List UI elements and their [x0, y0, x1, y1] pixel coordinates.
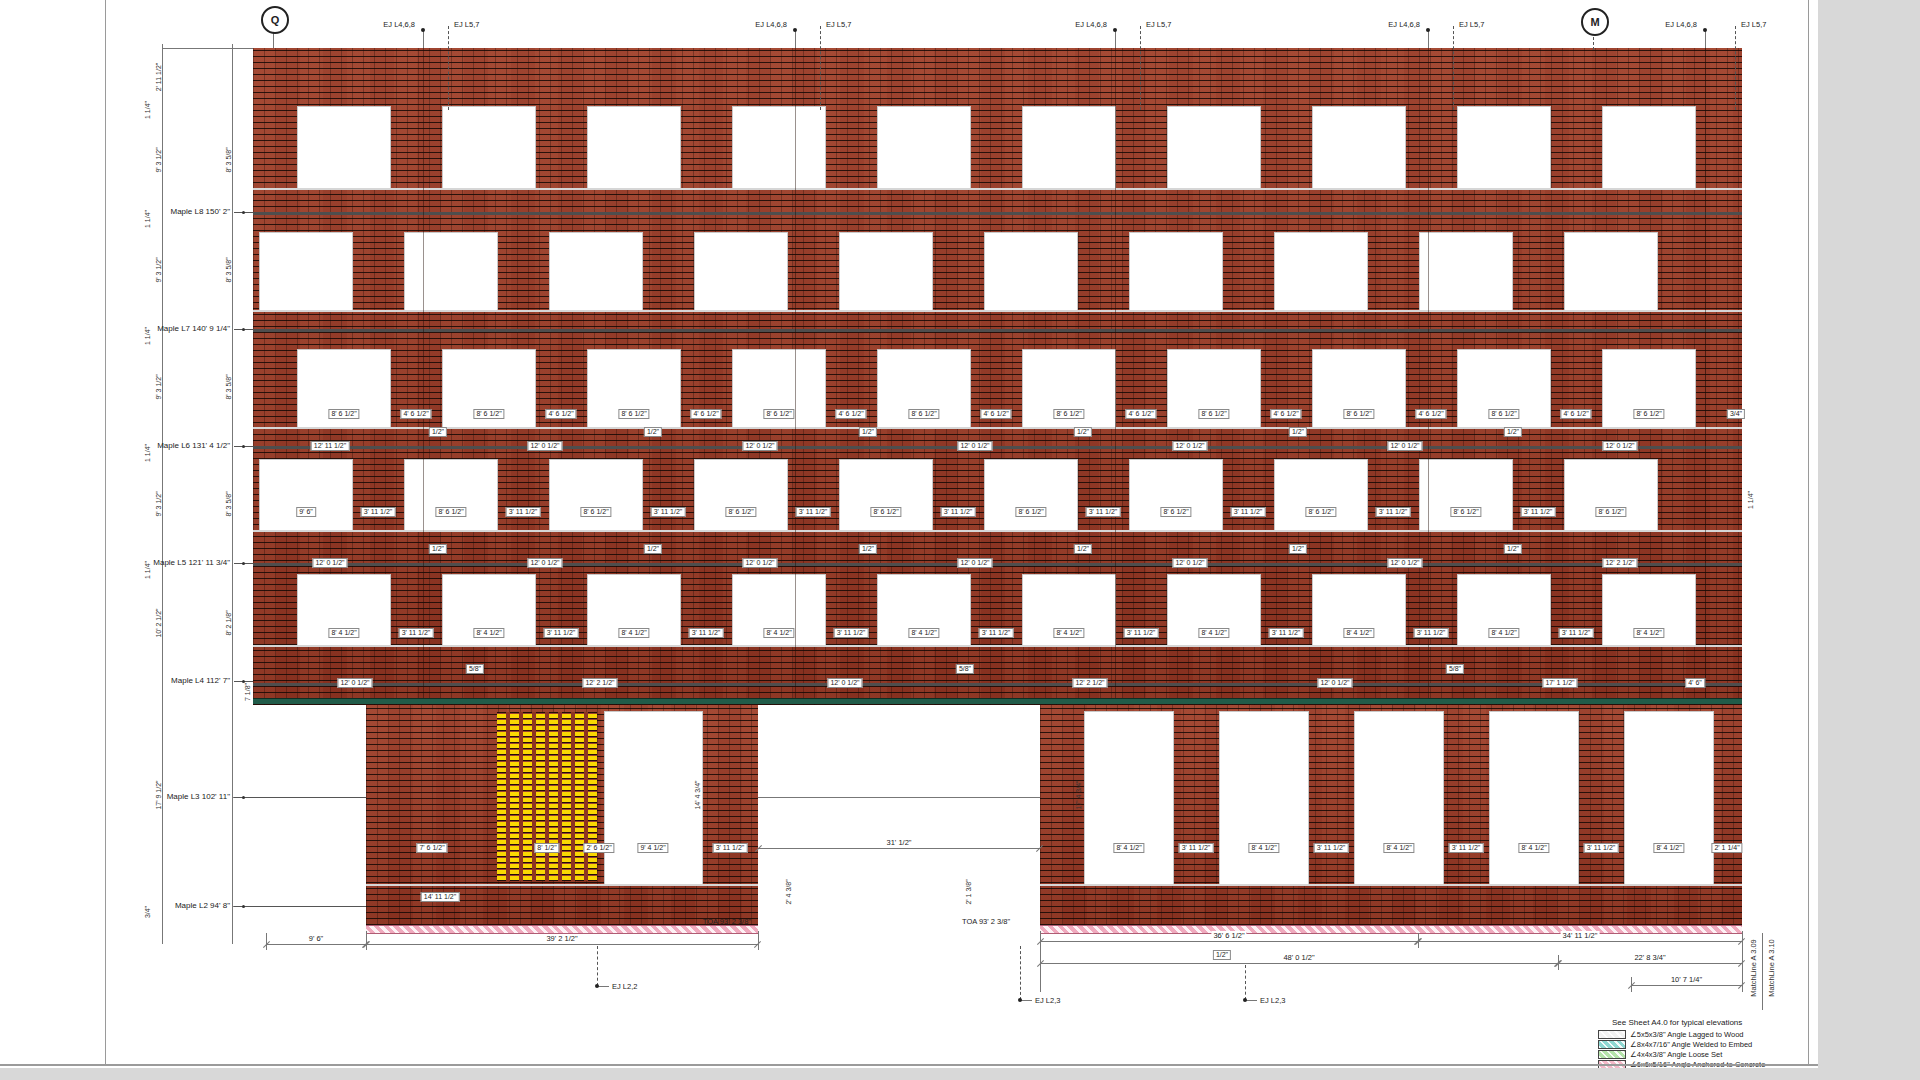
dimension-tag: 2' 6 1/2"	[583, 843, 614, 853]
grid-bubble-m: M	[1581, 8, 1609, 36]
dashed-reference-line	[820, 26, 821, 110]
dimension-tag: 8' 4 1/2"	[1198, 628, 1229, 638]
window-opening	[1458, 107, 1550, 188]
ej-dot	[1426, 28, 1430, 32]
ej-top-label-dashed: EJ L5,7	[1146, 20, 1171, 29]
window-opening	[550, 460, 642, 530]
dimension-tag: 8' 4 1/2"	[1488, 628, 1519, 638]
dimension-line	[1558, 963, 1742, 964]
dimension-line	[1418, 941, 1742, 942]
dimension-tag: 1/2"	[644, 544, 662, 554]
window-opening	[260, 460, 352, 530]
dimension-tag: 2' 1 1/4"	[1711, 843, 1742, 853]
dimension-tag: 8' 6 1/2"	[1160, 507, 1191, 517]
vertical-dimension-text: 17' 4 3/4"	[1075, 780, 1082, 809]
window-opening	[1603, 107, 1695, 188]
legend-swatch	[1598, 1030, 1626, 1039]
dimension-tag: 8' 6 1/2"	[725, 507, 756, 517]
window-opening	[298, 107, 390, 188]
dimension-tag: 8' 6 1/2"	[1198, 409, 1229, 419]
ej-top-label-dashed: EJ L5,7	[826, 20, 851, 29]
dimension-tag: 8' 4 1/2"	[1053, 628, 1084, 638]
dimension-tag: 12' 0 1/2"	[957, 441, 992, 451]
legend-item: ∠5x5x3/8" Angle Lagged to Wood	[1598, 1030, 1765, 1039]
reference-line	[758, 797, 1040, 798]
dimension-tag: 12' 0 1/2"	[1387, 441, 1422, 451]
dimension-tag: 3' 11 1/2"	[1584, 843, 1619, 853]
dimension-tag: 12' 2 1/2"	[582, 678, 617, 688]
dimension-tag: 3' 11 1/2"	[1124, 628, 1159, 638]
storefront-window	[1490, 712, 1578, 884]
dimension-tag: 3/4"	[1727, 409, 1745, 419]
ej-leader-line	[1428, 30, 1429, 48]
dimension-tag: 1/2"	[1504, 544, 1522, 554]
vertical-dimension-text: 2' 11 1/2"	[155, 63, 162, 92]
level-label: Maple L6 131' 4 1/2"	[62, 441, 230, 450]
dimension-tag: 8' 4 1/2"	[1633, 628, 1664, 638]
dimension-tag: 1/2"	[859, 544, 877, 554]
storefront-window	[605, 712, 702, 884]
dimension-tag: 8' 4 1/2"	[328, 628, 359, 638]
dimension-tag: 8' 6 1/2"	[580, 507, 611, 517]
ej-top-label-dashed: EJ L5,7	[454, 20, 479, 29]
legend-item-label: ∠4x4x3/8" Angle Loose Set	[1630, 1050, 1722, 1059]
dimension-tag: 8' 6 1/2"	[908, 409, 939, 419]
dimension-tag: 8' 6 1/2"	[1488, 409, 1519, 419]
dimension-tag: 12' 0 1/2"	[1172, 558, 1207, 568]
dimension-tag: 12' 0 1/2"	[1387, 558, 1422, 568]
window-opening	[1023, 107, 1115, 188]
window-opening	[733, 107, 825, 188]
dimension-tag: 12' 0 1/2"	[337, 678, 372, 688]
ej-dot	[793, 28, 797, 32]
dimension-tag: 8' 4 1/2"	[1383, 843, 1414, 853]
vertical-dimension-text: 9' 3 1/2"	[155, 257, 162, 282]
ej-bottom-label: EJ L2,3	[1035, 996, 1060, 1005]
window-opening	[1130, 460, 1222, 530]
dimension-tag: 12' 0 1/2"	[527, 441, 562, 451]
sheet-border-left	[105, 0, 106, 1064]
dimension-tag: 12' 0 1/2"	[742, 558, 777, 568]
dimension-tag: 1/2"	[1504, 427, 1522, 437]
dimension-tag: 8' 6 1/2"	[473, 409, 504, 419]
sheet-border-bottom	[0, 1064, 1920, 1066]
vertical-dimension-text: 9' 3 1/2"	[155, 374, 162, 399]
dimension-tag: 8' 6 1/2"	[435, 507, 466, 517]
level-leader-line	[234, 906, 366, 907]
level-leader-dot	[242, 328, 245, 331]
dimension-tag: 8' 4 1/2"	[1113, 843, 1144, 853]
dimension-tag: 8' 6 1/2"	[328, 409, 359, 419]
dimension-tag: 12' 0 1/2"	[1172, 441, 1207, 451]
dimension-tag: 4' 6 1/2"	[980, 409, 1011, 419]
loose-set-brick-panel	[497, 712, 597, 881]
ej-bottom-dashed-line	[597, 946, 598, 986]
window-opening	[840, 233, 932, 310]
dimension-line	[1631, 985, 1742, 986]
dimension-tag: 8' 4 1/2"	[1343, 628, 1374, 638]
dimension-tag: 12' 2 1/2"	[1602, 558, 1637, 568]
ej-leader-line	[1115, 30, 1116, 48]
dimension-tag: 4' 6 1/2"	[835, 409, 866, 419]
storefront-sill-line	[366, 884, 758, 886]
vertical-dimension-text: 14' 4 3/4"	[694, 780, 701, 809]
dimension-tag: 3' 11 1/2"	[834, 628, 869, 638]
level-leader-line	[234, 797, 366, 798]
dimension-tag: 3' 11 1/2"	[544, 628, 579, 638]
vertical-dimension-text: 8' 3 5/8"	[225, 147, 232, 172]
toa-label: TOA 93' 2 3/8"	[962, 917, 1010, 926]
ej-dot	[1113, 28, 1117, 32]
dimension-label: 39' 2 1/2"	[544, 934, 579, 943]
dimension-tag: 3' 11 1/2"	[713, 843, 748, 853]
dimension-tag: 12' 0 1/2"	[1317, 678, 1352, 688]
dimension-tag: 1/2"	[1074, 427, 1092, 437]
dimension-label: 31' 1/2"	[885, 838, 914, 847]
dimension-tag: 1/2"	[1074, 544, 1092, 554]
dimension-tag: 4' 6 1/2"	[1270, 409, 1301, 419]
window-opening	[1275, 233, 1367, 310]
dimension-tag: 3' 11 1/2"	[1179, 843, 1214, 853]
dimension-tag: 1/2"	[1289, 544, 1307, 554]
ej-bottom-dot	[595, 984, 599, 988]
dimension-tag: 8' 4 1/2"	[1248, 843, 1279, 853]
legend-item: ∠4x4x3/8" Angle Loose Set	[1598, 1050, 1765, 1059]
expansion-joint-line	[1428, 48, 1429, 698]
dimension-tag: 4' 6 1/2"	[545, 409, 576, 419]
dimension-tag: 3' 11 1/2"	[1559, 628, 1594, 638]
vertical-dimension-text: 1 1/4"	[144, 101, 151, 119]
storefront-window	[1085, 712, 1173, 884]
legend-item-label: ∠8x4x7/16" Angle Welded to Embed	[1630, 1040, 1752, 1049]
extension-line	[162, 44, 163, 944]
reference-line	[162, 48, 253, 49]
dimension-tag: 3' 11 1/2"	[1231, 507, 1266, 517]
dimension-line	[758, 848, 1040, 849]
dimension-tag: 3' 11 1/2"	[979, 628, 1014, 638]
ej-top-label-dashed: EJ L5,7	[1741, 20, 1766, 29]
dimension-tag: 3' 11 1/2"	[1376, 507, 1411, 517]
elevation-sheet: See Sheet A4.0 for typical elevations ∠5…	[0, 0, 1920, 1080]
window-opening	[1275, 460, 1367, 530]
storefront-sill-line	[1040, 884, 1742, 886]
window-opening	[1565, 233, 1657, 310]
ej-leader-line	[795, 30, 796, 48]
legend-swatch	[1598, 1050, 1626, 1059]
dimension-tag: 3' 11 1/2"	[1521, 507, 1556, 517]
window-opening	[405, 460, 497, 530]
dimension-tag: 4' 6 1/2"	[690, 409, 721, 419]
dimension-tag: 4' 6 1/2"	[1415, 409, 1446, 419]
legend-swatch	[1598, 1040, 1626, 1049]
dimension-tag: 3' 11 1/2"	[361, 507, 396, 517]
window-opening	[1565, 460, 1657, 530]
level-leader-dot	[242, 445, 245, 448]
window-opening	[1420, 460, 1512, 530]
dimension-tag: 8' 6 1/2"	[1053, 409, 1084, 419]
dimension-tag: 5/8"	[466, 664, 484, 674]
dimension-tag: 8' 6 1/2"	[1633, 409, 1664, 419]
ej-leader-line	[1705, 30, 1706, 48]
dimension-tag: 12' 0 1/2"	[827, 678, 862, 688]
level-label: Maple L3 102' 11"	[62, 792, 230, 801]
storefront-window	[1625, 712, 1713, 884]
dimension-tag: 8' 6 1/2"	[870, 507, 901, 517]
matchline-label: MatchLine A 3.09	[1749, 939, 1758, 997]
dimension-tag: 8' 6 1/2"	[1343, 409, 1374, 419]
dimension-tag: 12' 0 1/2"	[527, 558, 562, 568]
window-opening	[443, 107, 535, 188]
toa-label: TOA 93' 2 3/8"	[673, 917, 751, 926]
ej-bottom-dashed-line	[1245, 965, 1246, 1000]
vertical-dimension-text: 1 1/4"	[1747, 491, 1754, 509]
dimension-tag: 12' 0 1/2"	[1602, 441, 1637, 451]
legend-item-label: ∠5x5x3/8" Angle Lagged to Wood	[1630, 1030, 1744, 1039]
relieving-angle-line	[253, 563, 1742, 566]
dimension-line	[366, 944, 758, 945]
dashed-reference-line	[1140, 26, 1141, 110]
window-sill-line	[253, 530, 1742, 532]
level-label: Maple L8 150' 2"	[62, 207, 230, 216]
dimension-tag: 8' 4 1/2"	[1653, 843, 1684, 853]
dimension-tag: 1/2"	[859, 427, 877, 437]
window-opening	[695, 460, 787, 530]
window-opening	[405, 233, 497, 310]
dimension-tag: 8' 6 1/2"	[763, 409, 794, 419]
ej-top-label-solid: EJ L4,6,8	[711, 20, 787, 29]
ej-bottom-dashed-line	[1020, 946, 1021, 1000]
level-leader-dot	[242, 796, 245, 799]
ej-dot	[421, 28, 425, 32]
ej-top-label-solid: EJ L4,6,8	[1031, 20, 1107, 29]
level-leader-dot	[242, 905, 245, 908]
dimension-tag: 12' 0 1/2"	[312, 558, 347, 568]
dimension-tag: 8' 6 1/2"	[1450, 507, 1481, 517]
expansion-joint-line	[423, 48, 424, 698]
ej-top-label-dashed: EJ L5,7	[1459, 20, 1484, 29]
dimension-tag: 12' 11 1/2"	[311, 441, 350, 451]
level-label: Maple L4 112' 7"	[62, 676, 230, 685]
window-opening	[985, 460, 1077, 530]
dimension-tag: 3' 11 1/2"	[1269, 628, 1304, 638]
dimension-tag: 4' 6 1/2"	[1125, 409, 1156, 419]
level-leader-dot	[242, 562, 245, 565]
dimension-tag: 3' 11 1/2"	[399, 628, 434, 638]
dashed-reference-line	[1453, 26, 1454, 110]
expansion-joint-line	[1705, 48, 1706, 698]
dimension-tag: 7' 6 1/2"	[416, 843, 447, 853]
dimension-tag: 8' 4 1/2"	[618, 628, 649, 638]
ej-leader-line	[423, 30, 424, 48]
dimension-tag: 3' 11 1/2"	[1086, 507, 1121, 517]
page-margin-right	[1818, 0, 1920, 1080]
dimension-label: 9' 6"	[307, 934, 326, 943]
dimension-label: 22' 8 3/4"	[1632, 953, 1667, 962]
level-label: Maple L2 94' 8"	[62, 901, 230, 910]
dimension-tag: 8' 6 1/2"	[618, 409, 649, 419]
dimension-tag: 8' 4 1/2"	[908, 628, 939, 638]
dimension-line	[266, 944, 366, 945]
dimension-tag: 3' 11 1/2"	[1449, 843, 1484, 853]
level-label: Maple L7 140' 9 1/4"	[62, 324, 230, 333]
dimension-tag: 3' 11 1/2"	[796, 507, 831, 517]
ej-bottom-label: EJ L2,2	[612, 982, 637, 991]
relieving-angle-line	[253, 446, 1742, 449]
vertical-dimension-text: 8' 3 5/8"	[225, 257, 232, 282]
storefront-window	[1355, 712, 1443, 884]
dimension-line	[1040, 941, 1418, 942]
window-opening	[1420, 233, 1512, 310]
window-sill-line	[253, 188, 1742, 190]
vertical-dimension-text: 8' 3 5/8"	[225, 374, 232, 399]
window-sill-line	[253, 310, 1742, 312]
dimension-tag: 8' 6 1/2"	[1015, 507, 1046, 517]
vertical-dimension-text: 8' 2 1/8"	[225, 610, 232, 635]
dimension-tag: 5/8"	[1446, 664, 1464, 674]
window-opening	[260, 233, 352, 310]
dimension-tag: 8' 4 1/2"	[763, 628, 794, 638]
dimension-tag: 8' 4 1/2"	[473, 628, 504, 638]
window-opening	[985, 233, 1077, 310]
dimension-tag: 12' 0 1/2"	[957, 558, 992, 568]
dimension-tag: 3' 11 1/2"	[651, 507, 686, 517]
vertical-dimension-text: 2' 1 3/8"	[965, 879, 972, 904]
dimension-tag: 3' 11 1/2"	[506, 507, 541, 517]
dimension-tag: 8' 6 1/2"	[1305, 507, 1336, 517]
dimension-tag: 1/2"	[1289, 427, 1307, 437]
legend-title: See Sheet A4.0 for typical elevations	[1598, 1018, 1765, 1027]
vertical-dimension-text: 9' 3 1/2"	[155, 491, 162, 516]
dimension-tag: 9' 4 1/2"	[637, 843, 668, 853]
window-opening	[1313, 107, 1405, 188]
dimension-tag: 4' 6 1/2"	[400, 409, 431, 419]
dimension-tag: 8' 4 1/2"	[1518, 843, 1549, 853]
relieving-angle-line	[253, 329, 1742, 332]
welded-angle-line	[253, 698, 1742, 704]
vertical-dimension-text: 10' 2 1/2"	[155, 608, 162, 637]
dimension-tag: 3' 11 1/2"	[1414, 628, 1449, 638]
dimension-tag: 1/2"	[644, 427, 662, 437]
dimension-tag: 1/2"	[1213, 950, 1231, 960]
ej-bottom-dot	[1018, 998, 1022, 1002]
dimension-tag: 8' 6 1/2"	[1595, 507, 1626, 517]
dimension-line	[1040, 963, 1558, 964]
window-opening	[695, 233, 787, 310]
dimension-tag: 3' 11 1/2"	[941, 507, 976, 517]
dimension-label: 36' 6 1/2"	[1211, 931, 1246, 940]
expansion-joint-line	[1115, 48, 1116, 698]
dimension-label: 48' 0 1/2"	[1281, 953, 1316, 962]
page-margin-bottom	[0, 1068, 1920, 1080]
window-opening	[1130, 233, 1222, 310]
legend: See Sheet A4.0 for typical elevations ∠5…	[1598, 1018, 1765, 1070]
storefront-window	[1220, 712, 1308, 884]
legend-item: ∠8x4x7/16" Angle Welded to Embed	[1598, 1040, 1765, 1049]
relieving-angle-line	[253, 683, 1742, 686]
window-opening	[878, 107, 970, 188]
concrete-anchor-strip	[366, 925, 758, 934]
ej-top-label-solid: EJ L4,6,8	[1344, 20, 1420, 29]
vertical-dimension-text: 7 1/8"	[244, 683, 251, 701]
window-opening	[1168, 107, 1260, 188]
vertical-dimension-text: 9' 3 1/2"	[155, 147, 162, 172]
window-sill-line	[253, 645, 1742, 647]
dimension-tag: 4' 6 1/2"	[1560, 409, 1591, 419]
level-leader-dot	[242, 680, 245, 683]
dimension-tag: 12' 2 1/2"	[1072, 678, 1107, 688]
dimension-tag: 17' 1 1/2"	[1542, 678, 1577, 688]
window-opening	[840, 460, 932, 530]
level-leader-dot	[242, 211, 245, 214]
relieving-angle-line	[253, 212, 1742, 215]
dashed-reference-line	[448, 26, 449, 110]
matchline-label: MatchLine A 3.10	[1767, 939, 1776, 997]
extension-line	[232, 44, 233, 944]
vertical-dimension-text: 2' 4 3/8"	[785, 879, 792, 904]
dimension-tag: 12' 0 1/2"	[742, 441, 777, 451]
vertical-dimension-text: 8' 3 5/8"	[225, 491, 232, 516]
sheet-border-right	[1808, 0, 1809, 1064]
dimension-tag: 3' 11 1/2"	[1314, 843, 1349, 853]
concrete-anchor-strip	[1040, 925, 1742, 934]
dimension-tag: 3' 11 1/2"	[689, 628, 724, 638]
dimension-tag: 5/8"	[956, 664, 974, 674]
dimension-tag: 14' 11 1/2"	[421, 892, 460, 902]
dimension-tag: 4' 6"	[1685, 678, 1705, 688]
ej-bottom-dot	[1243, 998, 1247, 1002]
level-label: Maple L5 121' 11 3/4"	[62, 558, 230, 567]
window-opening	[550, 233, 642, 310]
ej-dot	[1703, 28, 1707, 32]
ej-top-label-solid: EJ L4,6,8	[1621, 20, 1697, 29]
dimension-tag: 9' 6"	[296, 507, 316, 517]
expansion-joint-line	[795, 48, 796, 698]
dimension-label: 34' 11 1/2"	[1561, 931, 1600, 940]
extension-line	[1762, 933, 1763, 1010]
dimension-label: 10' 7 1/4"	[1669, 975, 1704, 984]
ej-top-label-solid: EJ L4,6,8	[339, 20, 415, 29]
grid-bubble-q: Q	[261, 6, 289, 34]
dimension-tag: 1/2"	[429, 544, 447, 554]
window-opening	[588, 107, 680, 188]
dashed-reference-line	[1735, 26, 1736, 110]
ej-bottom-label: EJ L2,3	[1260, 996, 1285, 1005]
dimension-tag: 8' 1/2"	[534, 843, 559, 853]
dimension-tag: 1/2"	[429, 427, 447, 437]
